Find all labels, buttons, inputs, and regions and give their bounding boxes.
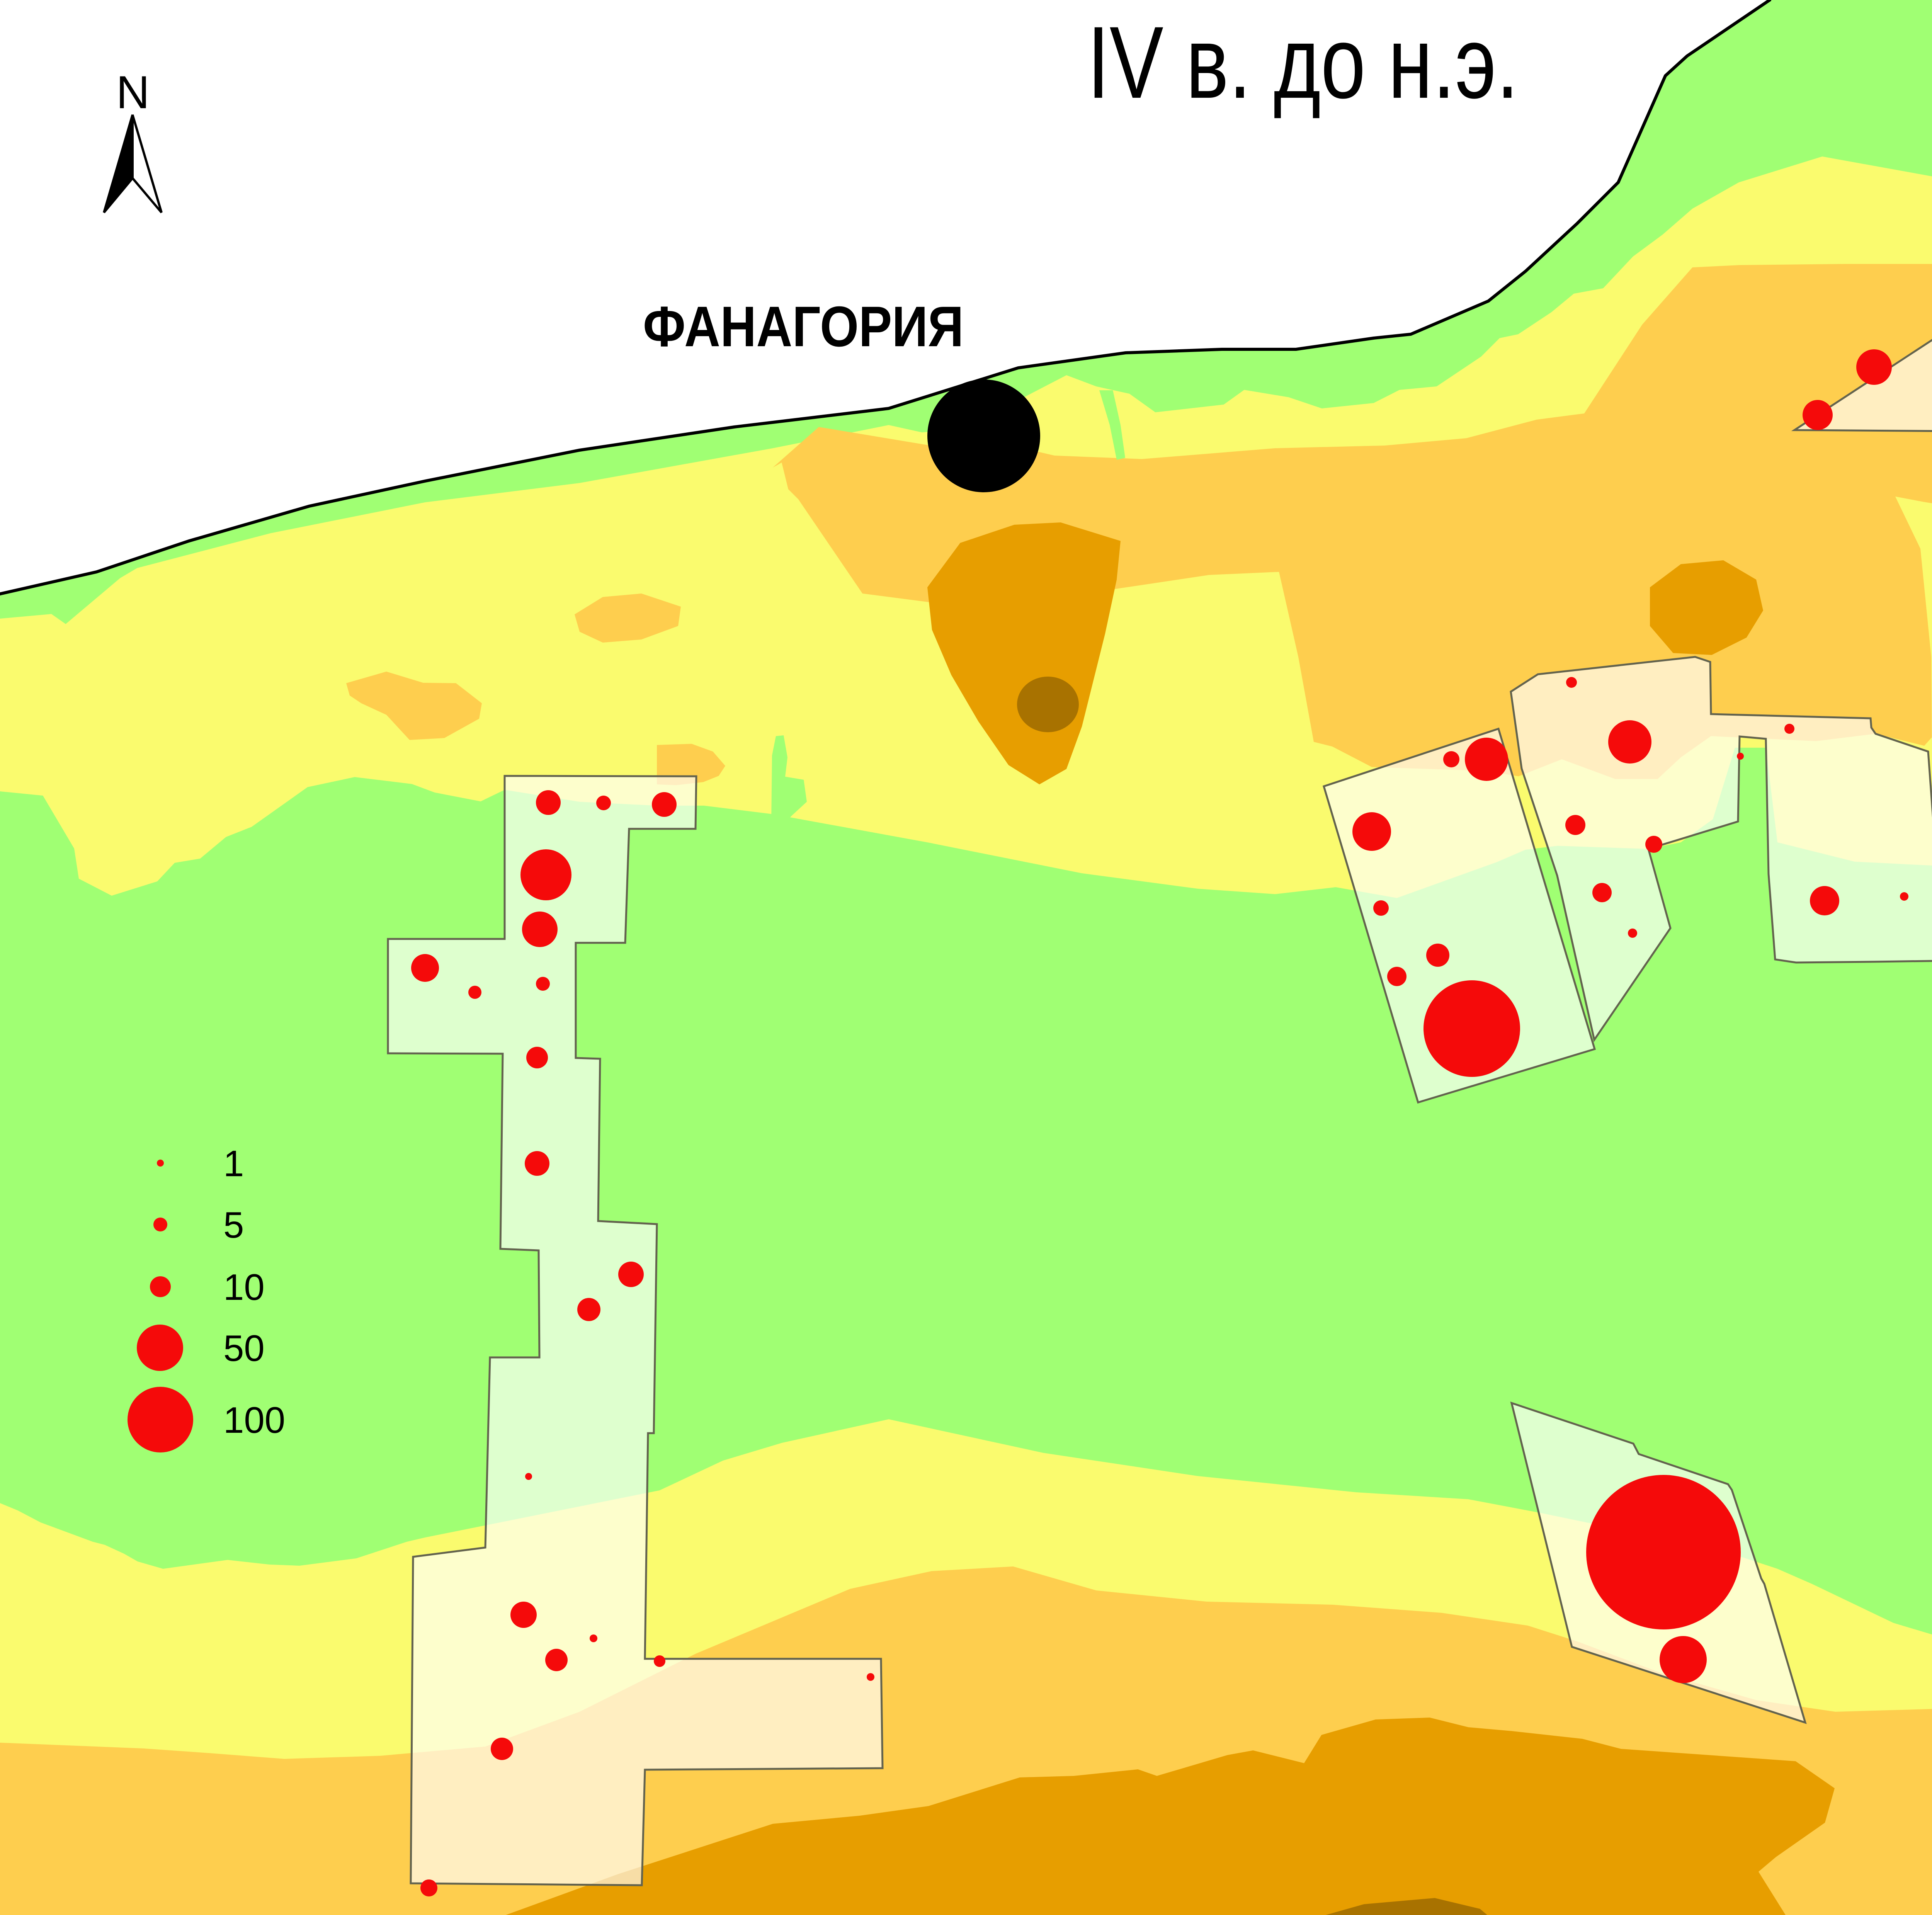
svg-text:IV в. до н.э.: IV в. до н.э. [1087,5,1519,120]
svg-text:N: N [116,66,150,118]
svg-text:50: 50 [223,1328,265,1369]
svg-text:10: 10 [223,1267,265,1308]
svg-text:100: 100 [223,1400,285,1441]
svg-text:5: 5 [223,1204,244,1246]
svg-text:ФАНАГОРИЯ: ФАНАГОРИЯ [643,295,964,359]
svg-text:1: 1 [223,1143,244,1184]
